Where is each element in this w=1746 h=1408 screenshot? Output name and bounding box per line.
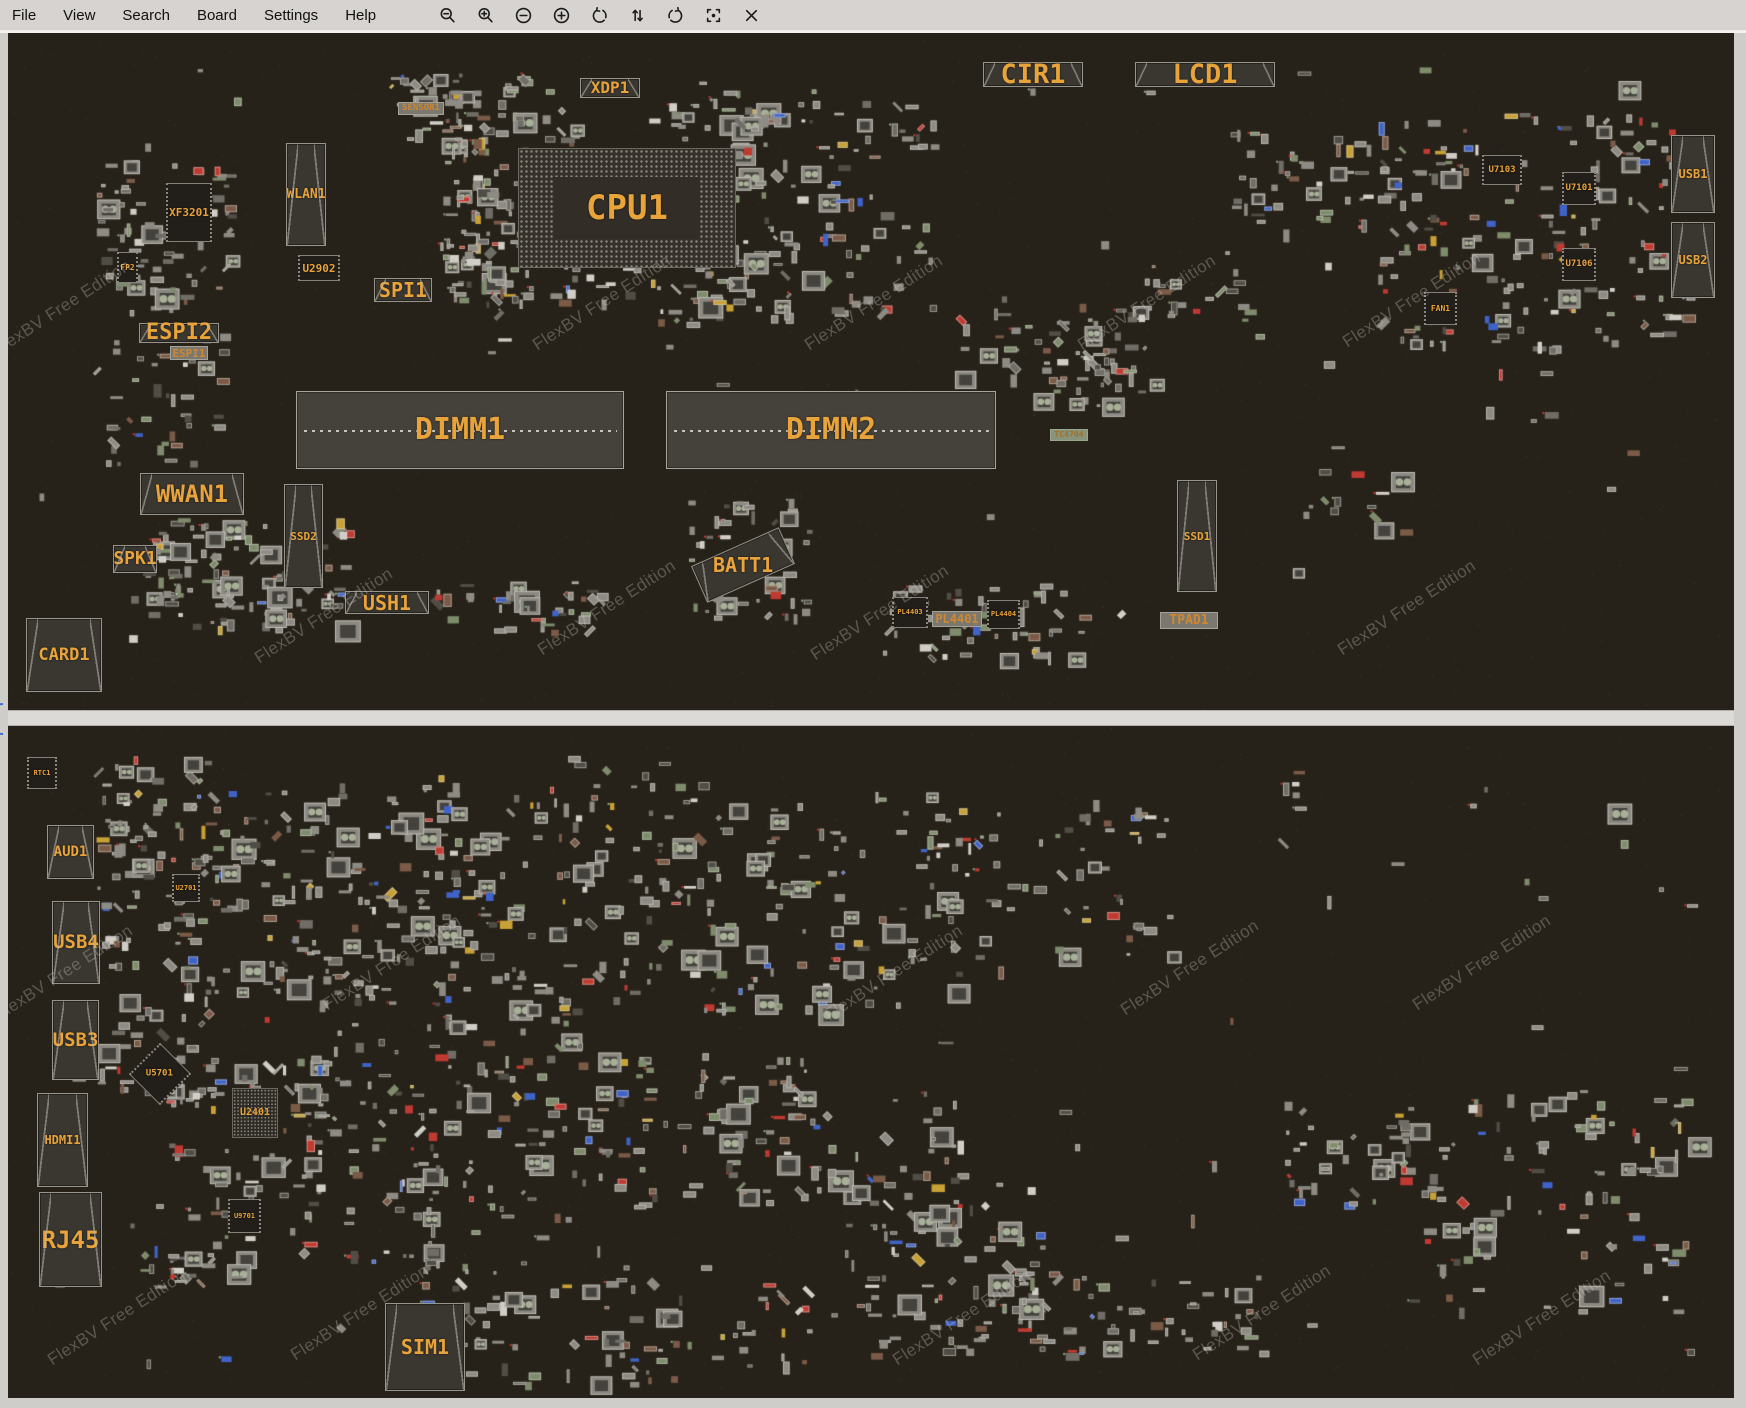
component-spi1[interactable]: SPI1: [374, 278, 432, 302]
board-viewport[interactable]: CPU1DIMM1DIMM2CIR1LCD1XDP1SENSOR1WLAN1XF…: [0, 33, 1746, 1408]
rotate-ccw-icon[interactable]: [590, 6, 608, 24]
board-divider: [8, 710, 1734, 726]
toolbar: [438, 6, 760, 24]
component-label-tpad1: TPAD1: [1169, 614, 1208, 627]
board-split-indicator[interactable]: [0, 701, 8, 742]
component-label-fp2: FP2: [120, 264, 134, 272]
component-label-aud1: AUD1: [54, 845, 88, 859]
component-u7103[interactable]: U7103: [1482, 155, 1522, 185]
component-dimm2[interactable]: DIMM2: [666, 391, 996, 469]
component-card1[interactable]: CARD1: [26, 618, 102, 692]
component-aud1[interactable]: AUD1: [47, 825, 94, 879]
zoom-out-icon[interactable]: [438, 6, 456, 24]
component-wwan1[interactable]: WWAN1: [140, 473, 244, 515]
menu-board[interactable]: Board: [197, 7, 237, 24]
component-label-fan1: FAN1: [1431, 305, 1450, 313]
component-label-pl4403: PL4403: [897, 609, 922, 616]
component-rtc1[interactable]: RTC1: [27, 757, 57, 789]
component-label-lcd1: LCD1: [1172, 61, 1237, 88]
zoom-in-icon[interactable]: [476, 6, 494, 24]
component-label-sensor1: SENSOR1: [402, 104, 440, 113]
component-sensor1[interactable]: SENSOR1: [398, 102, 444, 115]
component-label-usb2: USB2: [1679, 254, 1708, 266]
component-label-tc4704: TC4704: [1055, 431, 1084, 439]
component-espi1[interactable]: ESPI1: [170, 346, 208, 360]
component-label-hdmi1: HDMI1: [44, 1134, 80, 1146]
component-ssd1[interactable]: SSD1: [1177, 480, 1217, 592]
component-wlan1[interactable]: WLAN1: [286, 143, 326, 246]
component-label-cir1: CIR1: [1000, 61, 1065, 88]
component-label-xf3201: XF3201: [169, 207, 209, 218]
component-u5701[interactable]: U5701: [129, 1043, 191, 1105]
menu-list: FileViewSearchBoardSettingsHelp: [0, 7, 376, 24]
component-spk1[interactable]: SPK1: [113, 545, 157, 573]
component-xf3201[interactable]: XF3201: [166, 183, 212, 242]
component-label-ush1: USH1: [363, 593, 411, 613]
component-pl4403[interactable]: PL4403: [892, 597, 928, 628]
menu-search[interactable]: Search: [122, 7, 170, 24]
menubar: FileViewSearchBoardSettingsHelp: [0, 0, 1746, 33]
component-rj45[interactable]: RJ45: [39, 1192, 102, 1287]
component-label-dimm2: DIMM2: [786, 415, 876, 445]
component-pl4401[interactable]: PL4401: [932, 611, 982, 627]
component-sim1[interactable]: SIM1: [385, 1303, 465, 1391]
component-label-pl4401: PL4401: [935, 613, 978, 625]
component-label-u7106: U7106: [1565, 260, 1592, 269]
component-usb1[interactable]: USB1: [1671, 135, 1715, 213]
menu-file[interactable]: File: [12, 7, 36, 24]
component-ush1[interactable]: USH1: [345, 591, 429, 614]
component-tc4704[interactable]: TC4704: [1050, 429, 1088, 441]
component-usb3[interactable]: USB3: [52, 1000, 99, 1080]
close-icon[interactable]: [742, 6, 760, 24]
component-u2701[interactable]: U2701: [172, 874, 200, 902]
component-label-rj45: RJ45: [42, 1228, 100, 1252]
component-hdmi1[interactable]: HDMI1: [37, 1093, 88, 1187]
component-label-sim1: SIM1: [401, 1337, 449, 1357]
component-fp2[interactable]: FP2: [117, 252, 138, 283]
component-label-u7103: U7103: [1488, 166, 1515, 175]
component-label-ssd2: SSD2: [290, 531, 317, 542]
component-pl4404[interactable]: PL4404: [987, 600, 1020, 629]
rotate-cw-icon[interactable]: [666, 6, 684, 24]
component-cpu1[interactable]: CPU1: [518, 148, 736, 268]
component-label-usb1: USB1: [1679, 168, 1708, 180]
flip-vertical-icon[interactable]: [628, 6, 646, 24]
component-label-espi1: ESPI1: [172, 348, 205, 359]
component-label-dimm1: DIMM1: [415, 415, 505, 445]
component-label-wwan1: WWAN1: [156, 482, 228, 506]
component-fan1[interactable]: FAN1: [1424, 292, 1457, 325]
component-label-spk1: SPK1: [113, 550, 156, 568]
component-label-pl4404: PL4404: [991, 611, 1016, 618]
component-espi2[interactable]: ESPI2: [139, 323, 219, 343]
component-u7106[interactable]: U7106: [1562, 248, 1596, 281]
component-xdp1[interactable]: XDP1: [580, 78, 640, 98]
menu-view[interactable]: View: [63, 7, 95, 24]
component-label-u2701: U2701: [175, 885, 196, 892]
component-label-wlan1: WLAN1: [286, 188, 325, 201]
component-label-spi1: SPI1: [379, 280, 427, 300]
center-focus-icon[interactable]: [704, 6, 722, 24]
component-label-cpu1: CPU1: [586, 191, 668, 225]
component-cir1[interactable]: CIR1: [983, 62, 1083, 87]
component-batt1[interactable]: BATT1: [691, 527, 795, 603]
component-label-u7101: U7101: [1565, 184, 1592, 193]
circle-plus-icon[interactable]: [552, 6, 570, 24]
bga-core: CPU1: [554, 177, 701, 238]
component-label-batt1: BATT1: [713, 555, 773, 575]
component-label-rtc1: RTC1: [34, 770, 51, 777]
component-label-usb4: USB4: [53, 933, 99, 952]
component-u7101[interactable]: U7101: [1562, 172, 1596, 205]
menu-settings[interactable]: Settings: [264, 7, 318, 24]
component-label-u9701: U9701: [234, 1213, 255, 1220]
component-tpad1[interactable]: TPAD1: [1160, 612, 1218, 629]
component-label-u2902: U2902: [302, 263, 335, 274]
component-u2902[interactable]: U2902: [298, 255, 340, 281]
circle-minus-icon[interactable]: [514, 6, 532, 24]
component-label-espi2: ESPI2: [146, 322, 212, 344]
component-dimm1[interactable]: DIMM1: [296, 391, 624, 469]
component-label-ssd1: SSD1: [1184, 531, 1211, 542]
component-label-card1: CARD1: [38, 647, 89, 664]
component-usb2[interactable]: USB2: [1671, 222, 1715, 298]
component-u2401[interactable]: U2401: [232, 1088, 278, 1138]
component-label-usb3: USB3: [53, 1031, 99, 1050]
component-label-xdp1: XDP1: [591, 80, 630, 96]
component-usb4[interactable]: USB4: [52, 901, 100, 984]
component-lcd1[interactable]: LCD1: [1135, 62, 1275, 87]
menu-help[interactable]: Help: [345, 7, 376, 24]
component-ssd2[interactable]: SSD2: [284, 484, 323, 588]
component-u9701[interactable]: U9701: [228, 1199, 261, 1233]
component-label-u5701: U5701: [146, 1070, 173, 1079]
component-label-u2401: U2401: [240, 1108, 270, 1118]
